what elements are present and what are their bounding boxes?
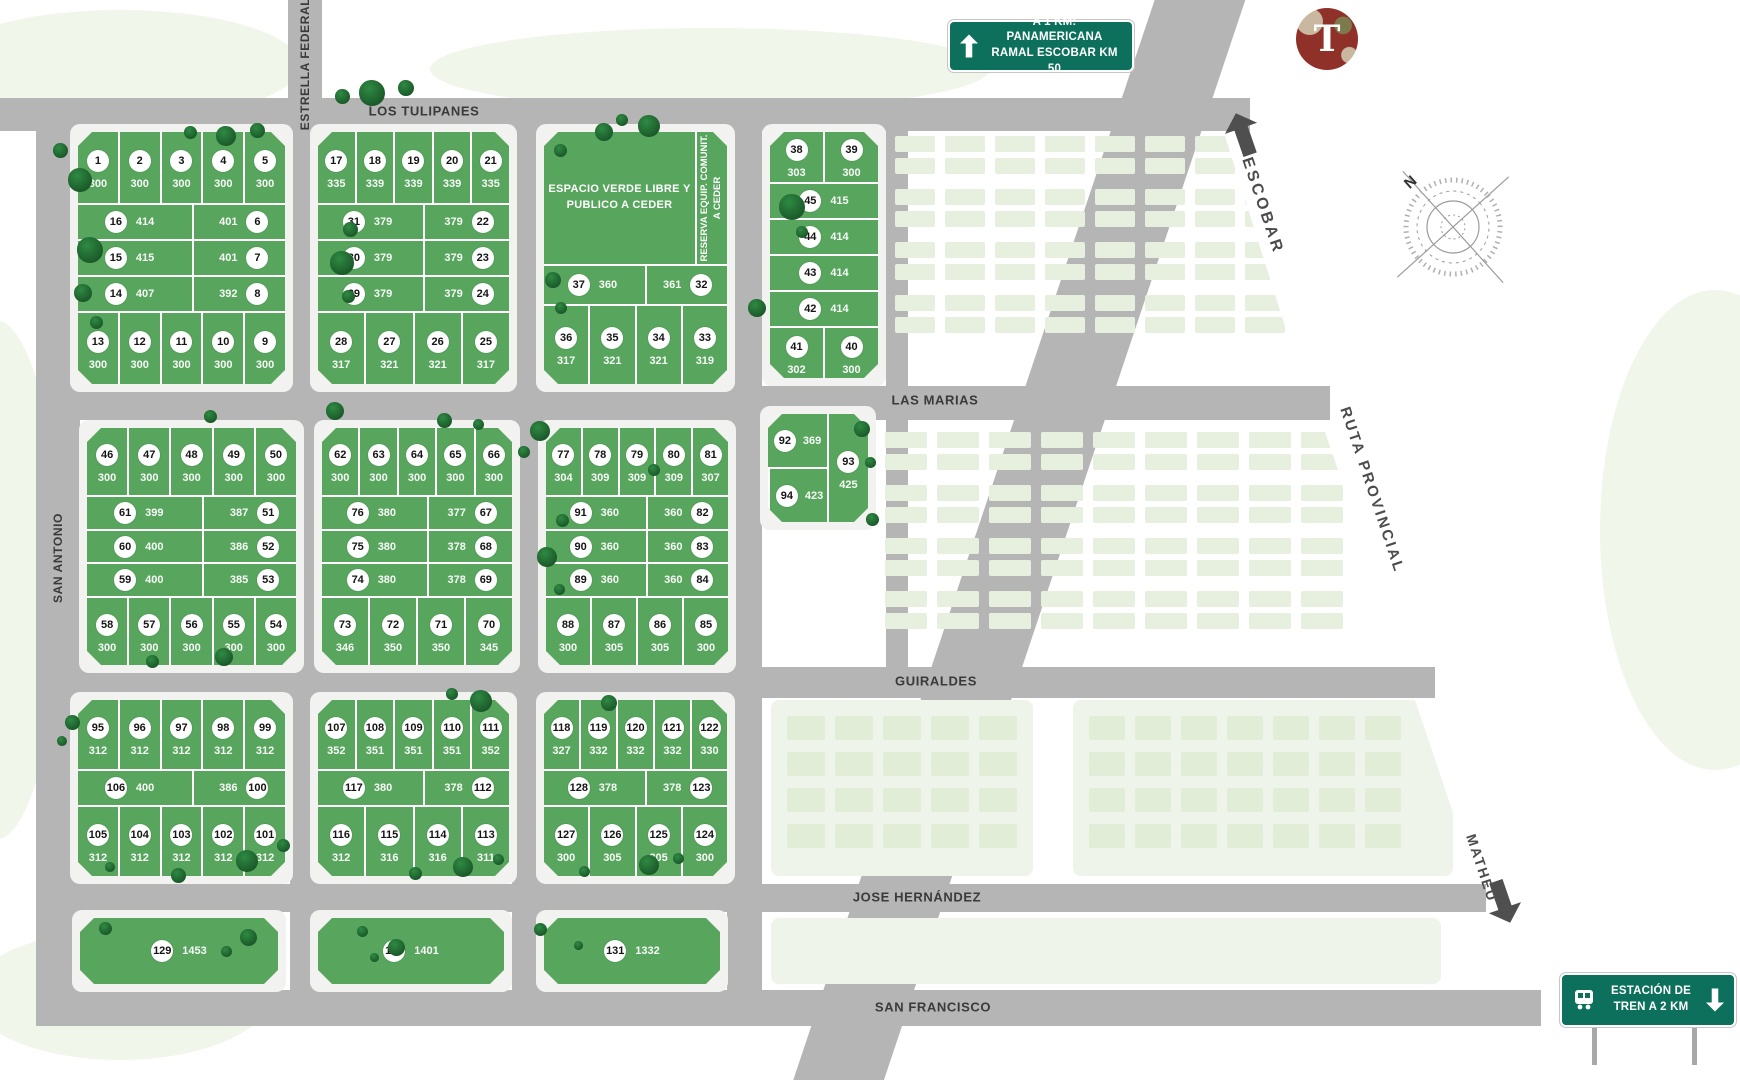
lot-number: 14 [105, 283, 127, 305]
house-footprint [995, 136, 1035, 152]
house-footprint [1245, 317, 1285, 333]
lot-size: 305 [603, 852, 621, 864]
lot-number: 119 [588, 717, 610, 739]
lot-size: 399 [145, 507, 163, 519]
house-footprint [1093, 560, 1135, 576]
house-footprint [1301, 538, 1343, 554]
lot-size: 305 [651, 642, 669, 654]
lot-row: 4130240300 [770, 326, 878, 378]
lot-size: 414 [830, 303, 848, 315]
house-footprint [1319, 752, 1355, 776]
house-footprint [1227, 824, 1263, 848]
manzana-5: 4630047300483004930050300613993875160400… [87, 428, 296, 665]
existing-housing-strip [771, 918, 1441, 984]
lot-size: 379 [444, 288, 462, 300]
house-footprint [895, 242, 935, 258]
lot-size: 300 [214, 359, 232, 371]
house-footprint [883, 788, 921, 812]
lot-46: 46300 [87, 428, 127, 495]
lot-116: 116312 [318, 807, 364, 876]
house-footprint [931, 788, 969, 812]
lot-number: 79 [626, 444, 648, 466]
lot-112: 378112 [423, 771, 509, 804]
lot-size: 300 [98, 642, 116, 654]
lot-number: 20 [441, 150, 463, 172]
lot-size: 350 [384, 642, 402, 654]
lot-122: 122330 [690, 700, 727, 769]
lot-66: 66300 [474, 428, 512, 495]
lot-size: 319 [696, 355, 714, 367]
lot-size: 300 [557, 852, 575, 864]
lot-size: 300 [697, 642, 715, 654]
lot-42: 42414 [770, 292, 878, 326]
lot-size: 300 [842, 364, 860, 376]
lot-size: 304 [554, 472, 572, 484]
house-footprint [1301, 432, 1343, 448]
lot-number: 13 [87, 331, 109, 353]
house-footprint [1045, 211, 1085, 227]
lot-size: 300 [485, 472, 503, 484]
lot-size: 378 [444, 782, 462, 794]
house-footprint [787, 824, 825, 848]
lot-size: 300 [225, 472, 243, 484]
lot-size: 346 [336, 642, 354, 654]
lot-size: 400 [136, 782, 154, 794]
lot-size: 312 [131, 745, 149, 757]
lot-95: 95312 [78, 700, 118, 769]
house-footprint [1195, 264, 1235, 280]
lot-size: 360 [664, 507, 682, 519]
lot-size: 300 [89, 359, 107, 371]
lot-number: 76 [347, 502, 369, 524]
lot-row: 6040038652 [87, 529, 296, 563]
road-jose-hernandez [36, 884, 1486, 912]
lot-size: 312 [89, 852, 107, 864]
tree-icon [171, 868, 186, 883]
lot-number: 86 [649, 614, 671, 636]
lot-number: 77 [552, 444, 574, 466]
lot-82: 36082 [646, 497, 728, 529]
lot-number: 127 [555, 824, 577, 846]
lot-number: 131 [604, 940, 626, 962]
lot-number: 89 [570, 569, 592, 591]
street-label-los-tulipanes: LOS TULIPANES [369, 104, 480, 119]
lot-8: 3928 [192, 277, 285, 311]
tree-icon [537, 547, 557, 567]
tree-icon [250, 123, 265, 138]
house-footprint [1095, 295, 1135, 311]
lot-size: 312 [256, 852, 274, 864]
lot-130: 1301401 [318, 918, 504, 984]
house-footprint [1145, 591, 1187, 607]
lot-number: 9 [254, 331, 276, 353]
lot-size: 352 [327, 745, 345, 757]
house-footprint [937, 613, 979, 629]
tree-icon [518, 446, 530, 458]
house-footprint [979, 716, 1017, 740]
house-footprint [1301, 560, 1343, 576]
house-footprint [1181, 752, 1217, 776]
house-footprint [1197, 591, 1239, 607]
house-footprint [1041, 485, 1083, 501]
lot-number: 65 [444, 444, 466, 466]
lot-row: 923699442393425 [768, 414, 868, 522]
block-pad: 1311332 [536, 910, 728, 992]
lot-92: 92369 [768, 414, 827, 467]
house-footprint [1273, 824, 1309, 848]
house-footprint [885, 485, 927, 501]
lot-number: 72 [382, 614, 404, 636]
lot-86: 86305 [636, 598, 682, 665]
lot-number: 33 [694, 327, 716, 349]
existing-housing-area [895, 136, 1295, 384]
lot-126: 126305 [588, 807, 634, 876]
lot-number: 124 [694, 824, 716, 846]
lot-number: 11 [170, 331, 192, 353]
house-footprint [895, 189, 935, 205]
lot-number: 74 [347, 569, 369, 591]
tree-icon [534, 923, 547, 936]
house-footprint [1093, 507, 1135, 523]
lot-number: 81 [700, 444, 722, 466]
lot-number: 105 [87, 824, 109, 846]
lot-52: 38652 [202, 531, 296, 563]
lot-107: 107352 [318, 700, 355, 769]
house-footprint [1197, 432, 1239, 448]
lot-size: 327 [552, 745, 570, 757]
lot-number: 101 [254, 824, 276, 846]
house-footprint [1093, 454, 1135, 470]
house-footprint [1249, 613, 1291, 629]
lot-40: 40300 [823, 328, 878, 378]
house-footprint [1365, 788, 1401, 812]
house-footprint [945, 242, 985, 258]
lot-size: 300 [696, 852, 714, 864]
house-footprint [1197, 454, 1239, 470]
lot-size: 351 [443, 745, 461, 757]
house-footprint [989, 538, 1031, 554]
block-pad: ESPACIO VERDE LIBRE Y PUBLICO A CEDER RE… [536, 124, 735, 392]
tree-icon [146, 655, 159, 668]
lot-size: 300 [182, 472, 200, 484]
lot-number: 15 [105, 247, 127, 269]
house-footprint [1135, 716, 1171, 740]
lot-row: 9531296312973129831299312 [78, 700, 285, 769]
lot-size: 300 [331, 472, 349, 484]
sign-post [1692, 1025, 1697, 1065]
tree-icon [854, 421, 870, 437]
tree-icon [556, 514, 569, 527]
house-footprint [1249, 454, 1291, 470]
lot-19: 19339 [393, 132, 432, 203]
house-footprint [1249, 591, 1291, 607]
house-footprint [1093, 591, 1135, 607]
house-footprint [1197, 538, 1239, 554]
lot-27: 27321 [364, 313, 412, 384]
house-footprint [1181, 716, 1217, 740]
lot-size: 312 [256, 745, 274, 757]
tree-icon [554, 144, 567, 157]
block-pad: 9531296312973129831299312106400386100105… [70, 692, 293, 884]
lot-size: 339 [443, 178, 461, 190]
house-footprint [883, 752, 921, 776]
lot-size: 386 [230, 541, 248, 553]
lot-size: 335 [481, 178, 499, 190]
house-footprint [1095, 158, 1135, 174]
lot-number: 63 [368, 444, 390, 466]
arrow-up-icon [960, 34, 978, 58]
lot-row: 128378378123 [544, 769, 727, 804]
lot-row: 43414 [770, 254, 878, 290]
lot-56: 56300 [169, 598, 211, 665]
lot-row: 6230063300643006530066300 [322, 428, 512, 495]
compass-north-label: N [1401, 172, 1420, 192]
lot-70: 70345 [464, 598, 512, 665]
lot-number: 48 [181, 444, 203, 466]
house-footprint [885, 432, 927, 448]
lot-row: 1311332 [544, 918, 720, 984]
lot-number: 66 [483, 444, 505, 466]
lot-18: 18339 [355, 132, 394, 203]
lot-33: 33319 [681, 306, 727, 384]
lot-58: 58300 [87, 598, 127, 665]
lot-size: 385 [230, 574, 248, 586]
lot-23: 37923 [423, 241, 509, 275]
lot-number: 71 [430, 614, 452, 636]
block-pad: 1301401 [310, 910, 512, 992]
lot-size: 379 [374, 216, 392, 228]
lot-number: 98 [212, 717, 234, 739]
community-reserve-label: RESERVA EQUIP. COMUNIT. A CEDER [699, 123, 725, 273]
logo-letter: T [1314, 18, 1341, 60]
house-footprint [1045, 295, 1085, 311]
lot-75: 75380 [322, 531, 427, 563]
house-footprint [937, 432, 979, 448]
lot-row: 8936036084 [546, 562, 728, 596]
house-footprint [945, 317, 985, 333]
lot-size: 380 [378, 507, 396, 519]
street-label-estrella-federal: ESTRELLA FEDERAL [298, 0, 312, 130]
highway-sign-line2: RAMAL ESCOBAR KM 50 [987, 46, 1122, 77]
green-space-area: ESPACIO VERDE LIBRE Y PUBLICO A CEDER RE… [544, 132, 727, 264]
lot-22: 37922 [423, 205, 509, 239]
tree-icon [184, 126, 197, 139]
lot-size: 400 [145, 574, 163, 586]
lot-size: 312 [172, 745, 190, 757]
house-footprint [1089, 788, 1125, 812]
lot-row: 117380378112 [318, 769, 509, 804]
lot-48: 48300 [169, 428, 211, 495]
lot-number: 78 [589, 444, 611, 466]
lot-number: 111 [480, 717, 502, 739]
lot-row: 154154017 [78, 239, 285, 275]
lot-row: 1301401 [318, 918, 504, 984]
tree-icon [90, 316, 103, 329]
lot-number: 73 [334, 614, 356, 636]
lot-number: 42 [799, 298, 821, 320]
house-footprint [1145, 454, 1187, 470]
house-footprint [1041, 507, 1083, 523]
block-pad: 6230063300643006530066300763803776775380… [314, 420, 520, 673]
lot-size: 351 [366, 745, 384, 757]
house-footprint [1145, 158, 1185, 174]
house-footprint [1045, 189, 1085, 205]
lot-row: 133001230011300103009300 [78, 311, 285, 384]
house-footprint [1195, 295, 1235, 311]
house-footprint [1249, 560, 1291, 576]
block-pad: 4630047300483004930050300613993875160400… [79, 420, 304, 673]
house-footprint [895, 211, 935, 227]
house-footprint [989, 613, 1031, 629]
house-footprint [895, 136, 935, 152]
house-footprint [1227, 752, 1263, 776]
lot-number: 62 [329, 444, 351, 466]
lot-row: 164144016 [78, 203, 285, 239]
lot-number: 90 [570, 536, 592, 558]
house-footprint [995, 317, 1035, 333]
house-footprint [1095, 211, 1135, 227]
lot-118: 118327 [544, 700, 579, 769]
lot-number: 126 [601, 824, 623, 846]
lot-number: 51 [257, 502, 279, 524]
tree-icon [68, 168, 92, 192]
house-footprint [1045, 242, 1085, 258]
lot-size: 300 [182, 642, 200, 654]
lot-87: 87305 [590, 598, 636, 665]
lot-71: 71350 [416, 598, 464, 665]
lot-size: 309 [591, 472, 609, 484]
lot-number: 25 [475, 331, 497, 353]
lot-96: 96312 [118, 700, 160, 769]
house-footprint [787, 788, 825, 812]
lot-number: 121 [662, 717, 684, 739]
lot-36: 36317 [544, 306, 588, 384]
lot-number: 93 [837, 451, 859, 473]
tree-icon [57, 736, 67, 746]
house-footprint [835, 824, 873, 848]
house-footprint [1145, 211, 1185, 227]
lot-number: 49 [223, 444, 245, 466]
lot-size: 339 [366, 178, 384, 190]
train-station-sign: ESTACIÓN DE TREN A 2 KM [1560, 973, 1736, 1027]
lot-row: 13002300330043005300 [78, 132, 285, 203]
lot-size: 332 [589, 745, 607, 757]
lot-number: 88 [557, 614, 579, 636]
house-footprint [1041, 538, 1083, 554]
house-footprint [945, 295, 985, 311]
arrow-down-icon [1706, 988, 1724, 1012]
lot-number: 103 [170, 824, 192, 846]
lot-row: 7638037767 [322, 495, 512, 529]
lot-49: 49300 [212, 428, 254, 495]
lot-size: 414 [830, 267, 848, 279]
lot-103: 103312 [160, 807, 202, 876]
lot-38: 38303 [770, 132, 823, 182]
tree-icon [796, 226, 808, 238]
tree-icon [370, 953, 379, 962]
lot-5: 5300 [243, 132, 285, 203]
lot-124: 124300 [681, 807, 727, 876]
lot-size: 401 [219, 216, 237, 228]
lot-row: 3830339300 [770, 132, 878, 182]
lot-100: 386100 [192, 771, 285, 804]
house-footprint [1227, 788, 1263, 812]
house-footprint [1145, 432, 1187, 448]
tree-icon [545, 272, 561, 288]
house-footprint [995, 158, 1035, 174]
lot-number: 28 [330, 331, 352, 353]
house-footprint [979, 824, 1017, 848]
lot-number: 106 [105, 777, 127, 799]
tree-icon [616, 114, 628, 126]
lot-size: 425 [839, 479, 857, 491]
house-footprint [1301, 613, 1343, 629]
lot-77: 77304 [546, 428, 581, 495]
street-label-las-marias: LAS MARIAS [892, 393, 979, 408]
house-footprint [1145, 613, 1187, 629]
lot-size: 316 [428, 852, 446, 864]
house-footprint [945, 264, 985, 280]
lot-size: 360 [601, 541, 619, 553]
house-footprint [1093, 485, 1135, 501]
lot-number: 46 [96, 444, 118, 466]
train-sign-line2: TREN A 2 KM [1605, 1000, 1697, 1016]
road-san-francisco [36, 990, 1541, 1026]
house-footprint [1093, 613, 1135, 629]
tree-icon [555, 302, 567, 314]
house-footprint [885, 454, 927, 470]
house-footprint [1301, 591, 1343, 607]
lot-size: 360 [599, 279, 617, 291]
lot-size: 335 [327, 178, 345, 190]
lot-number: 83 [691, 536, 713, 558]
lot-size: 345 [480, 642, 498, 654]
lot-size: 360 [664, 541, 682, 553]
lot-number: 26 [427, 331, 449, 353]
lot-number: 10 [212, 331, 234, 353]
lot-size: 380 [374, 782, 392, 794]
house-footprint [945, 211, 985, 227]
house-footprint [995, 242, 1035, 258]
lot-68: 37868 [427, 531, 512, 563]
lot-size: 330 [700, 745, 718, 757]
lot-number: 5 [254, 150, 276, 172]
house-footprint [1197, 560, 1239, 576]
house-footprint [1195, 211, 1235, 227]
lot-131: 1311332 [544, 918, 720, 984]
tree-icon [236, 850, 258, 872]
lot-size: 339 [404, 178, 422, 190]
house-footprint [1145, 264, 1185, 280]
lot-number: 38 [786, 139, 808, 161]
house-footprint [931, 752, 969, 776]
house-footprint [835, 716, 873, 740]
house-footprint [1319, 824, 1355, 848]
lot-number: 123 [690, 777, 712, 799]
house-footprint [1197, 613, 1239, 629]
lot-size: 321 [428, 359, 446, 371]
house-footprint [937, 507, 979, 523]
house-footprint [895, 317, 935, 333]
house-footprint [895, 295, 935, 311]
lot-number: 84 [691, 569, 713, 591]
tree-icon [53, 143, 68, 158]
tree-icon [601, 695, 617, 711]
tree-icon [673, 853, 684, 864]
lot-size: 309 [665, 472, 683, 484]
lot-size: 415 [136, 252, 154, 264]
lot-47: 47300 [127, 428, 169, 495]
